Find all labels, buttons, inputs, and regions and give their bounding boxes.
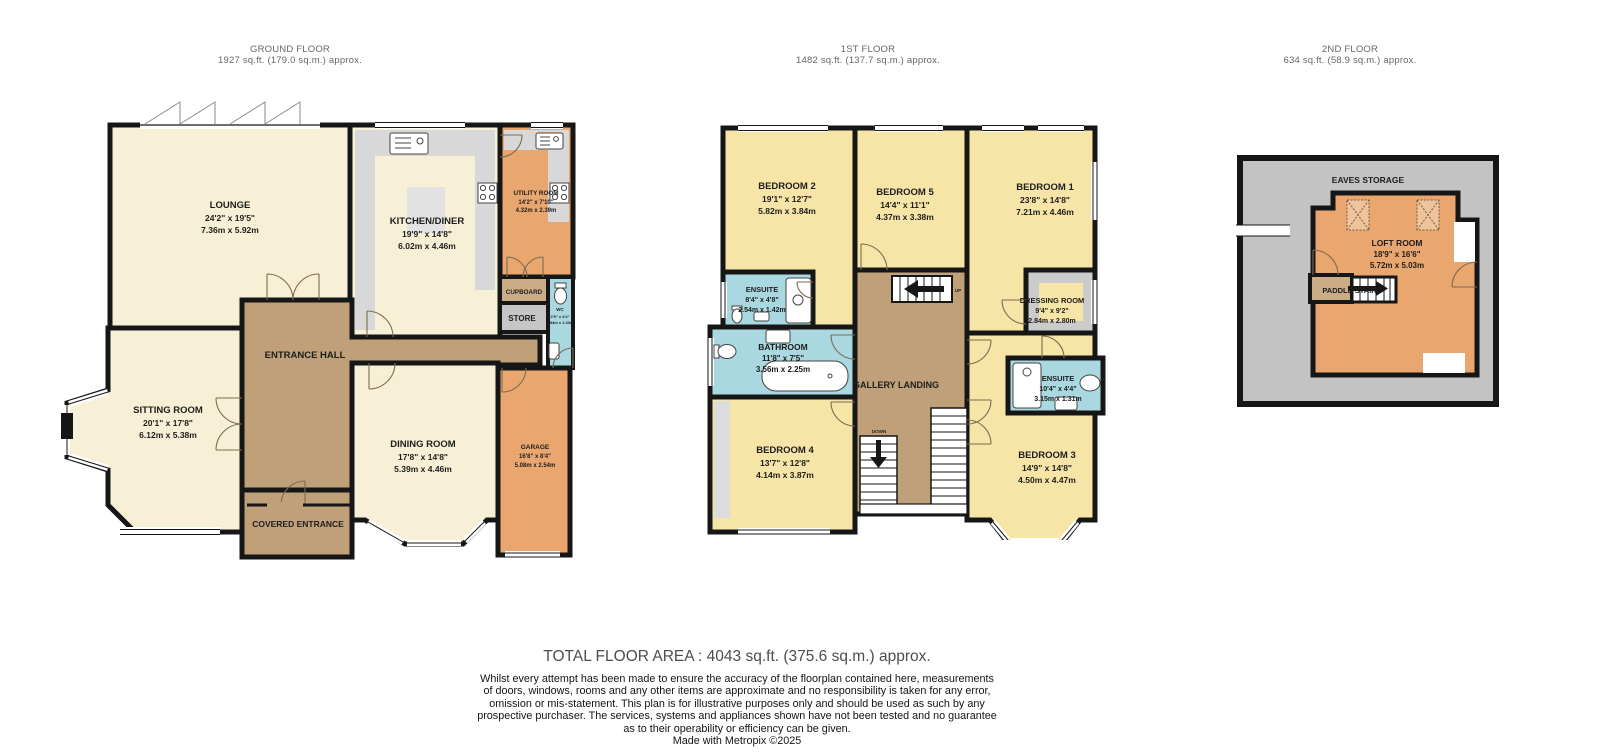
up-label: UP <box>955 288 961 293</box>
up-arrow <box>916 286 944 292</box>
window <box>982 123 1024 132</box>
eaves-name: EAVES STORAGE <box>1332 175 1405 185</box>
utility-met: 4.32m x 2.39m <box>516 208 557 214</box>
floorplan-page: GROUND FLOOR 1927 sq.ft. (179.0 sq.m.) a… <box>0 0 1600 755</box>
total-floor-area: TOTAL FLOOR AREA : 4043 sq.ft. (375.6 sq… <box>337 648 1137 666</box>
window <box>738 528 830 536</box>
second-floor-area: 634 sq.ft. (58.9 sq.m.) approx. <box>1190 55 1510 66</box>
ensuite1-name: ENSUITE <box>746 285 779 294</box>
hob-icon <box>478 183 497 203</box>
window <box>706 338 714 386</box>
down-label: DOWN <box>872 429 886 434</box>
bedroom1-imp: 23'8" x 14'8" <box>1020 195 1070 205</box>
kitchen-imp: 19'9" x 14'8" <box>402 229 452 239</box>
dressing-imp: 9'4" x 9'2" <box>1035 308 1068 315</box>
garage-imp: 16'8" x 8'4" <box>519 454 551 460</box>
sitting-imp: 20'1" x 17'8" <box>143 418 193 428</box>
disclaimer-line: as to their operability or efficiency ca… <box>337 723 1137 735</box>
room-garage <box>498 368 570 555</box>
wardrobe <box>714 401 730 518</box>
sitting-met: 6.12m x 5.38m <box>139 430 197 440</box>
store-name: STORE <box>508 314 536 323</box>
bedroom3-met: 4.50m x 4.47m <box>1018 475 1076 485</box>
ensuite2-name: ENSUITE <box>1042 374 1075 383</box>
wc-name: WC <box>556 307 564 312</box>
dining-imp: 17'8" x 14'8" <box>398 452 448 462</box>
second-floor-header: 2ND FLOOR 634 sq.ft. (58.9 sq.m.) approx… <box>1190 44 1510 66</box>
ensuite2-imp: 10'4" x 4'4" <box>1039 386 1076 393</box>
disclaimer-line: omission or mis-statement. This plan is … <box>337 698 1137 710</box>
bathroom-name: BATHROOM <box>758 342 807 352</box>
paddle-stairs-label: PADDLE STAIRS <box>1322 286 1381 295</box>
first-floor-plan: UP DOWN <box>690 100 1120 540</box>
bedroom5-name: BEDROOM 5 <box>876 187 934 198</box>
wc-imp: 2'9" x 4'4" <box>550 314 569 319</box>
toilet-icon <box>555 283 567 304</box>
bedroom2-imp: 19'1" x 12'7" <box>762 194 812 204</box>
wc-met: 0.84m x 1.33m <box>546 320 574 325</box>
dining-met: 5.39m x 4.46m <box>394 464 452 474</box>
dormer-recess <box>1423 353 1465 373</box>
cupboard-name: CUPBOARD <box>506 289 543 296</box>
window <box>1091 280 1099 324</box>
toilet-icon <box>714 345 736 359</box>
sink-icon <box>536 133 563 149</box>
ground-floor-plan: LOUNGE 24'2" x 19'5" 7.36m x 5.92m KITCH… <box>55 95 585 565</box>
room-bedroom5 <box>855 128 967 270</box>
first-floor-title: 1ST FLOOR <box>708 44 1028 55</box>
bedroom4-imp: 13'7" x 12'8" <box>760 458 810 468</box>
bedroom1-met: 7.21m x 4.46m <box>1016 207 1074 217</box>
disclaimer-line: Whilst every attempt has been made to en… <box>337 673 1137 685</box>
lounge-name: LOUNGE <box>210 200 251 211</box>
bedroom5-met: 4.37m x 3.38m <box>876 212 934 222</box>
lounge-met: 7.36m x 5.92m <box>201 225 259 235</box>
bedroom4-name: BEDROOM 4 <box>756 445 814 456</box>
bathroom-met: 3.56m x 2.25m <box>756 365 810 374</box>
first-floor-area: 1482 sq.ft. (137.7 sq.m.) approx. <box>708 55 1028 66</box>
loft-met: 5.72m x 5.03m <box>1370 261 1424 270</box>
window <box>1038 123 1084 132</box>
garage-met: 5.08m x 2.54m <box>515 463 556 469</box>
ground-floor-title: GROUND FLOOR <box>130 44 450 55</box>
ensuite1-imp: 8'4" x 4'8" <box>745 297 778 304</box>
ground-floor-area: 1927 sq.ft. (179.0 sq.m.) approx. <box>130 55 450 66</box>
shower-icon <box>786 278 811 323</box>
utility-name: UTILITY ROOM <box>513 190 558 197</box>
dressing-name: DRESSING ROOM <box>1020 296 1085 305</box>
basin-icon <box>549 343 559 359</box>
window <box>375 120 465 129</box>
kitchen-name: KITCHEN/DINER <box>390 216 465 227</box>
window <box>738 123 828 132</box>
loft-name: LOFT ROOM <box>1372 238 1423 248</box>
landing-name: GALLERY LANDING <box>853 380 939 390</box>
dining-name: DINING ROOM <box>390 439 456 450</box>
sink-icon <box>390 133 428 154</box>
bedroom3-name: BEDROOM 3 <box>1018 450 1076 461</box>
ensuite2-met: 3.15m x 1.31m <box>1034 396 1081 403</box>
disclaimer-line: prospective purchaser. The services, sys… <box>337 710 1137 722</box>
dressing-met: 2.84m x 2.80m <box>1028 318 1075 325</box>
utility-imp: 14'2" x 7'10" <box>518 200 553 206</box>
window <box>1091 162 1099 220</box>
lounge-imp: 24'2" x 19'5" <box>205 213 255 223</box>
second-floor-title: 2ND FLOOR <box>1190 44 1510 55</box>
second-floor-plan: EAVES STORAGE LOFT ROOM 18'9" x 16'6" 5.… <box>1230 150 1510 415</box>
kitchen-met: 6.02m x 4.46m <box>398 241 456 251</box>
loft-imp: 18'9" x 16'6" <box>1374 250 1421 259</box>
skylight-icon <box>1417 200 1439 230</box>
window <box>875 123 943 132</box>
bedroom1-name: BEDROOM 1 <box>1016 182 1074 193</box>
covered-name: COVERED ENTRANCE <box>252 519 344 529</box>
window <box>505 551 560 559</box>
hall-name: ENTRANCE HALL <box>265 350 346 361</box>
chimney-breast <box>61 413 73 439</box>
ground-floor-header: GROUND FLOOR 1927 sq.ft. (179.0 sq.m.) a… <box>130 44 450 66</box>
first-floor-header: 1ST FLOOR 1482 sq.ft. (137.7 sq.m.) appr… <box>708 44 1028 66</box>
skylight-icon <box>1347 200 1369 230</box>
bifold-door-marks <box>140 102 320 129</box>
window <box>719 282 727 318</box>
bedroom5-imp: 14'4" x 11'1" <box>880 200 929 210</box>
window <box>120 527 220 536</box>
bathroom-imp: 11'8" x 7'5" <box>762 354 804 363</box>
sitting-name: SITTING ROOM <box>133 405 203 416</box>
garage-name: GARAGE <box>521 444 550 451</box>
made-with-credit: Made with Metropix ©2025 <box>337 735 1137 747</box>
toilet-icon <box>1080 375 1100 391</box>
ensuite1-met: 2.54m x 1.42m <box>738 307 785 314</box>
dormer-recess <box>1454 222 1475 262</box>
bedroom2-met: 5.82m x 3.84m <box>758 206 816 216</box>
bedroom3-imp: 14'9" x 14'8" <box>1022 463 1072 473</box>
bedroom2-name: BEDROOM 2 <box>758 181 816 192</box>
eaves-corridor <box>1236 225 1290 236</box>
footer: TOTAL FLOOR AREA : 4043 sq.ft. (375.6 sq… <box>337 648 1137 747</box>
disclaimer-line: of doors, windows, rooms and any other i… <box>337 685 1137 697</box>
window <box>531 120 563 129</box>
bedroom4-met: 4.14m x 3.87m <box>756 470 814 480</box>
stairs-up: UP <box>892 276 961 302</box>
